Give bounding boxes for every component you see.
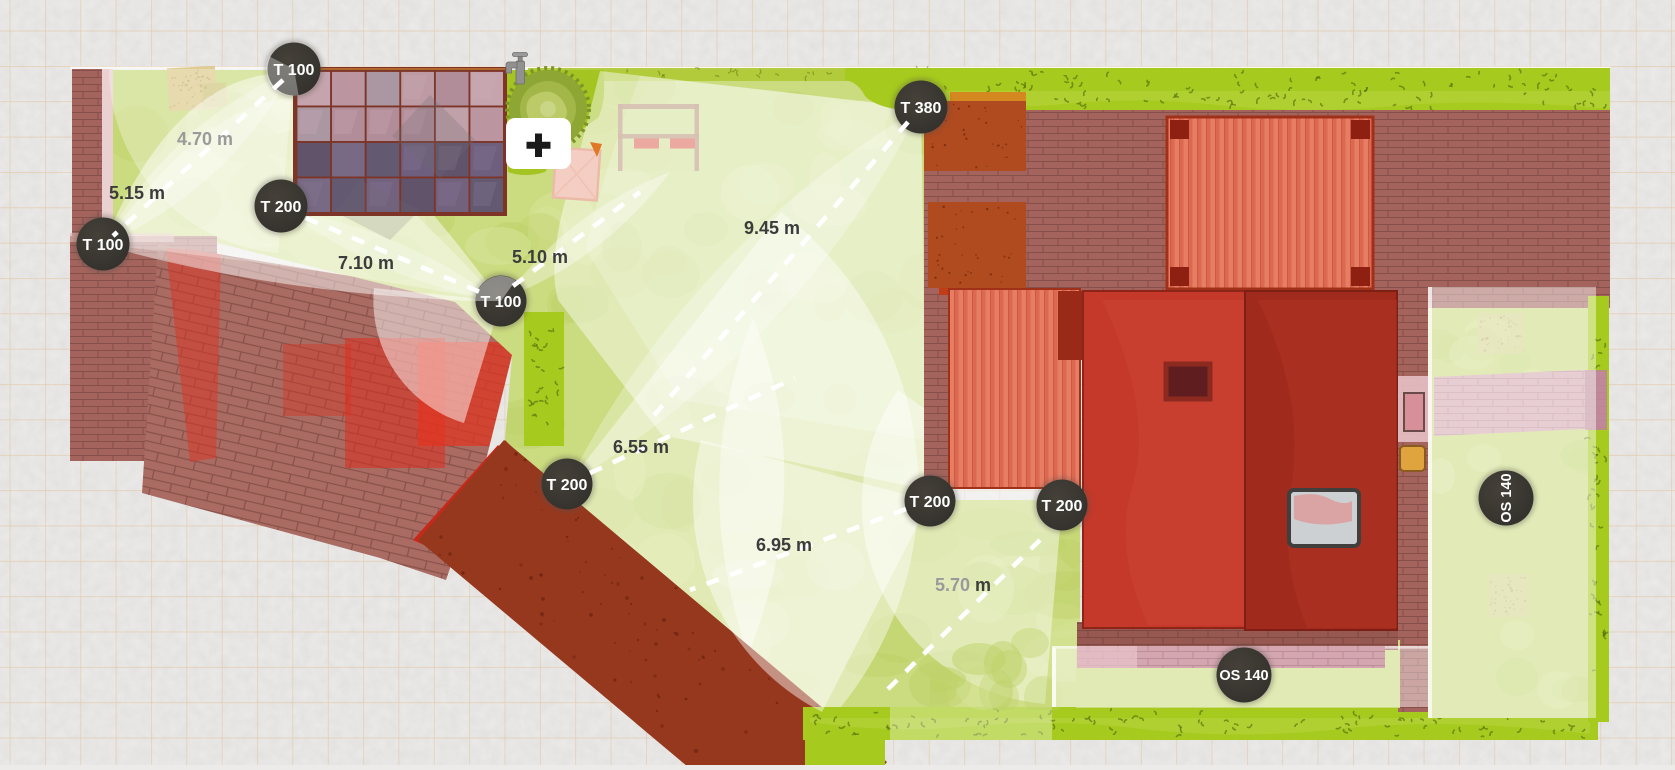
svg-text:4.70 m: 4.70 m [177,129,233,149]
svg-text:T 380: T 380 [901,100,942,117]
svg-text:T 100: T 100 [274,62,315,79]
svg-text:T 200: T 200 [547,477,588,494]
svg-text:T 100: T 100 [83,237,124,254]
svg-text:6.55 m: 6.55 m [613,437,669,457]
svg-text:9.45 m: 9.45 m [744,218,800,238]
svg-text:6.95 m: 6.95 m [756,535,812,555]
svg-text:5.70 m: 5.70 m [935,575,991,595]
svg-text:T 100: T 100 [481,294,522,311]
svg-text:T 200: T 200 [1042,498,1083,515]
svg-text:5.15 m: 5.15 m [109,183,165,203]
svg-text:T 200: T 200 [910,494,951,511]
svg-text:OS 140: OS 140 [1499,473,1515,522]
svg-text:7.10 m: 7.10 m [338,253,394,273]
svg-text:OS 140: OS 140 [1219,668,1268,684]
svg-text:T 200: T 200 [261,199,302,216]
svg-text:5.10 m: 5.10 m [512,247,568,267]
